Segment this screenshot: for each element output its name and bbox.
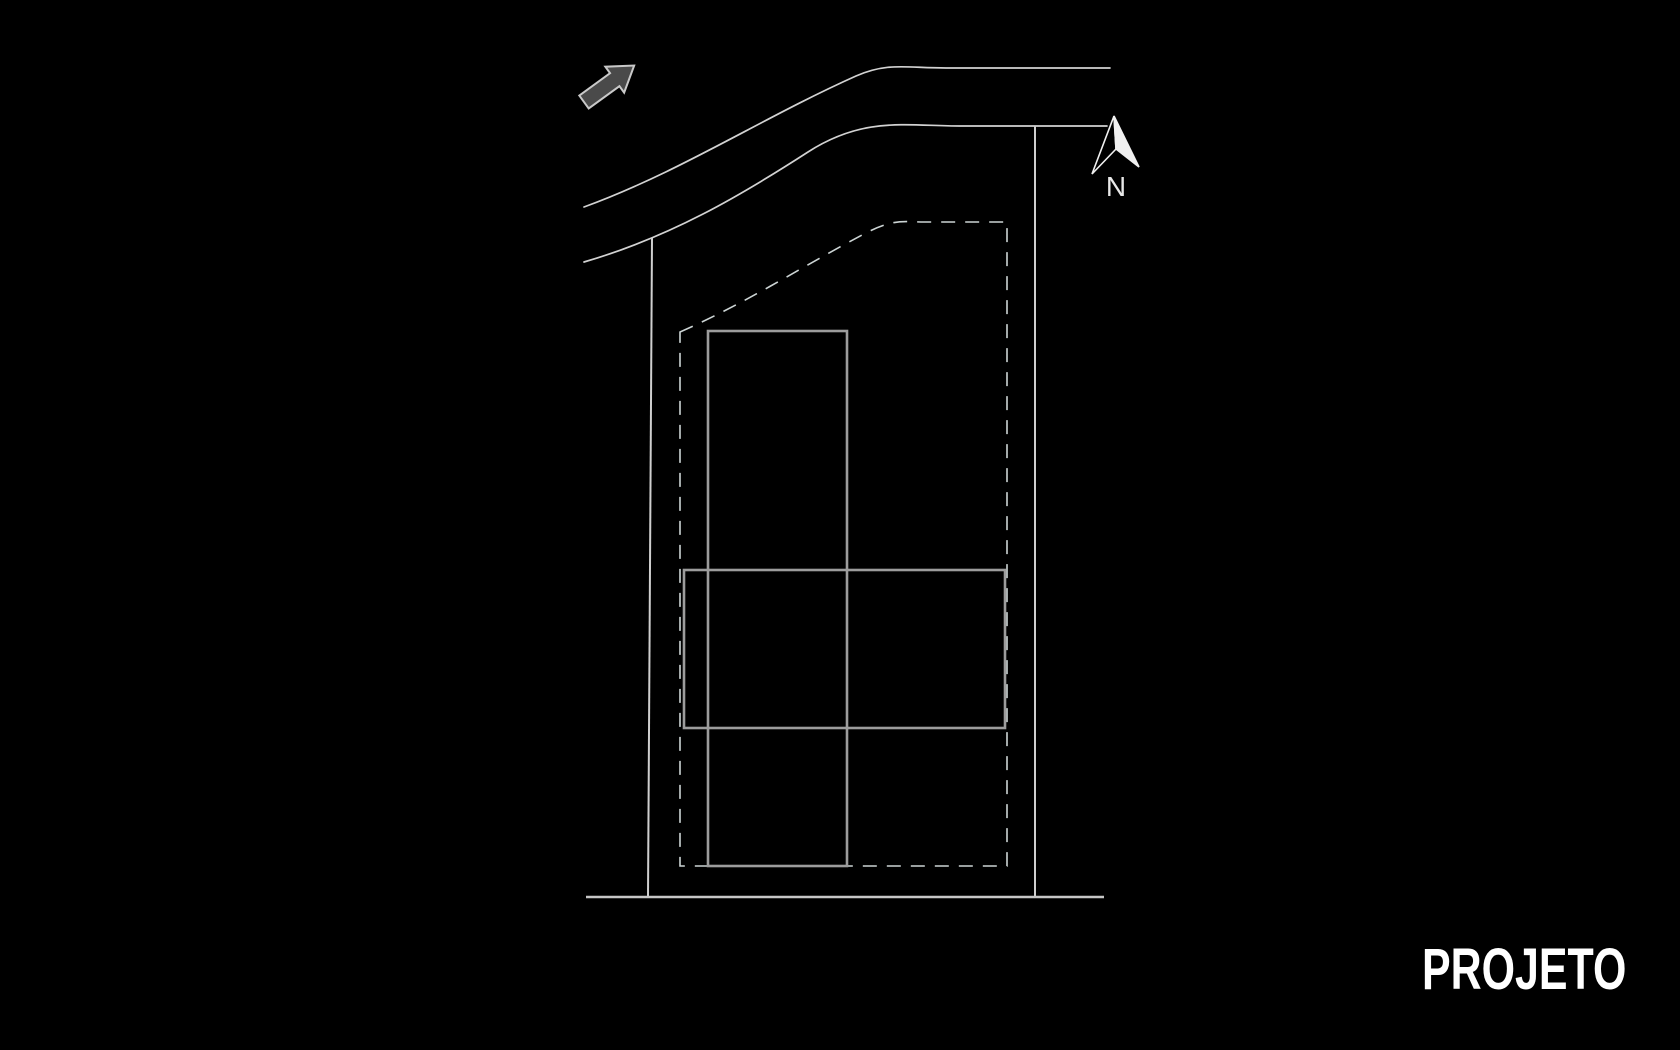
direction-arrow-shape (575, 53, 644, 115)
setback-dashed-line (680, 222, 1007, 866)
street-inner-curb-line (584, 125, 1107, 262)
north-arrow-left-wing (1092, 116, 1116, 174)
street-lines (584, 67, 1110, 262)
direction-arrow-icon (575, 53, 644, 115)
north-arrow-right-wing (1114, 116, 1139, 167)
building-wide-rectangle (684, 570, 1005, 728)
lot-boundary (586, 126, 1104, 897)
site-plan-drawing: N (0, 0, 1680, 1050)
page-title: PROJETO (1422, 941, 1626, 999)
building-footprint (684, 331, 1005, 866)
building-tall-rectangle (708, 331, 847, 866)
blueprint-canvas: N PROJETO (0, 0, 1680, 1050)
north-label: N (1106, 171, 1126, 202)
lot-boundary-left-line (648, 238, 652, 897)
north-arrow-icon: N (1092, 116, 1139, 202)
street-outer-curb-line (584, 67, 1110, 207)
